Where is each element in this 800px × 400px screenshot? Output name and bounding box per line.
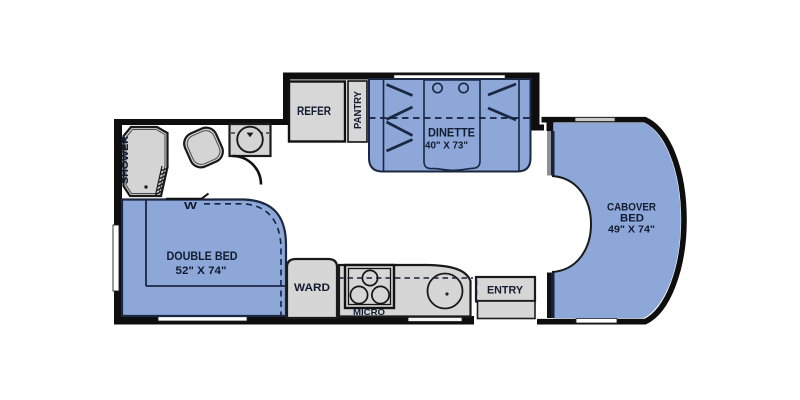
svg-text:WARD: WARD: [294, 282, 330, 294]
svg-text:W: W: [184, 201, 198, 212]
svg-text:49" X 74": 49" X 74": [608, 224, 655, 236]
svg-text:52" X 74": 52" X 74": [176, 265, 227, 277]
svg-text:SHOWER: SHOWER: [120, 136, 131, 184]
svg-text:DINETTE: DINETTE: [428, 128, 475, 140]
svg-text:MICRO: MICRO: [353, 307, 385, 317]
svg-text:ENTRY: ENTRY: [487, 285, 524, 297]
svg-text:REFER: REFER: [297, 104, 331, 118]
svg-text:40" X 73": 40" X 73": [425, 140, 468, 152]
svg-text:PANTRY: PANTRY: [353, 91, 364, 129]
svg-text:DOUBLE BED: DOUBLE BED: [167, 251, 238, 263]
